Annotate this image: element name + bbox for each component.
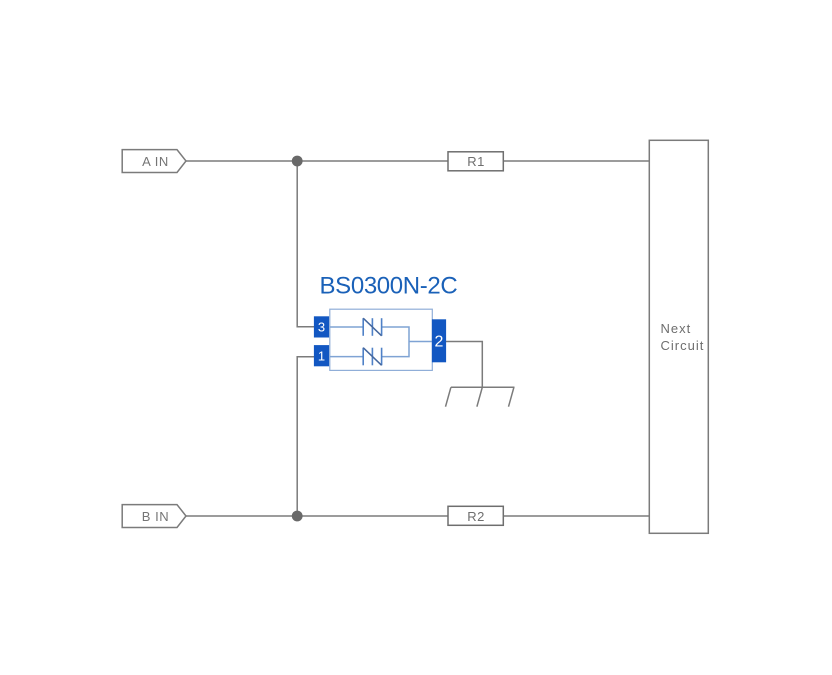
svg-text:R2: R2 — [467, 509, 485, 524]
svg-text:Next: Next — [661, 321, 692, 336]
svg-text:Circuit: Circuit — [661, 338, 705, 353]
svg-text:2: 2 — [435, 333, 444, 350]
svg-text:3: 3 — [318, 320, 325, 335]
svg-text:BS0300N-2C: BS0300N-2C — [320, 273, 458, 300]
svg-text:A IN: A IN — [142, 154, 169, 169]
svg-text:1: 1 — [318, 348, 325, 363]
svg-text:B IN: B IN — [142, 509, 169, 524]
svg-text:R1: R1 — [467, 154, 485, 169]
